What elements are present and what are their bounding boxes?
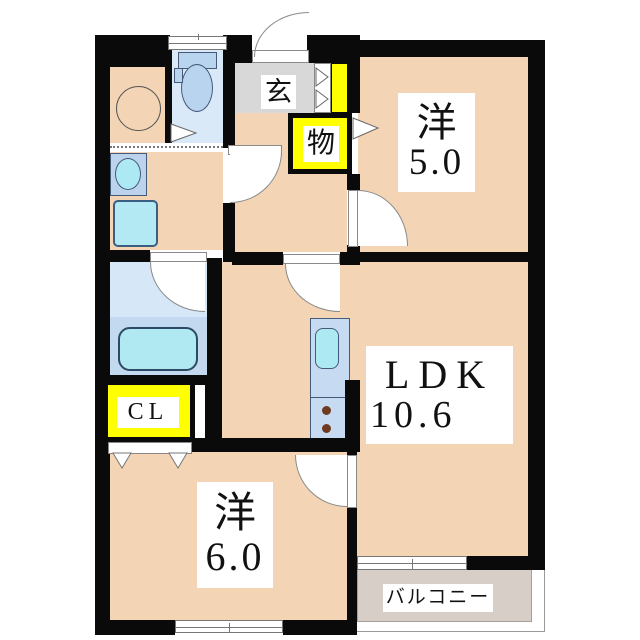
room-name: 洋 xyxy=(417,102,457,144)
room-label-entrance: 玄 xyxy=(261,75,296,109)
wall xyxy=(95,620,175,635)
wall xyxy=(95,35,110,635)
room-label-western5: 洋 5.0 xyxy=(398,93,475,192)
wall xyxy=(108,250,150,262)
shoe-cabinet-folding-door xyxy=(314,63,331,113)
curtain-divider xyxy=(110,143,223,152)
folding-door-chevron-icon xyxy=(316,68,328,86)
wall xyxy=(283,620,357,635)
washbasin-icon xyxy=(110,153,147,196)
room-area: 10.6 xyxy=(366,396,457,436)
folding-door-chevron-icon xyxy=(316,90,328,108)
entry-door-arc xyxy=(254,12,309,57)
wall xyxy=(528,40,545,570)
washbasin-bowl-icon xyxy=(115,158,141,190)
room-label-balcony: バルコニー xyxy=(383,584,493,612)
stove-burner-icon xyxy=(322,406,331,415)
room-label-storage: 物 xyxy=(303,126,339,162)
wall xyxy=(223,38,235,148)
wall xyxy=(347,507,357,635)
room-label-closet: CL xyxy=(117,397,179,428)
room-label-western6: 洋 6.0 xyxy=(197,482,273,588)
toilet-icon xyxy=(181,64,213,112)
western6-door-leaf xyxy=(347,455,357,508)
washing-machine-pan-icon xyxy=(113,200,158,247)
wall xyxy=(232,252,283,265)
shoe-cabinet xyxy=(331,63,348,113)
wall xyxy=(467,556,533,570)
wall xyxy=(207,258,222,380)
folding-door-triangle-icon xyxy=(112,452,132,470)
folding-door-triangle-icon xyxy=(168,452,188,470)
room-name: 洋 xyxy=(214,492,256,536)
bathroom-door-leaf xyxy=(150,252,207,262)
kitchen-sink-icon xyxy=(315,328,339,369)
window xyxy=(168,36,227,50)
balcony-sliding-door xyxy=(357,556,467,570)
room-area: 6.0 xyxy=(206,536,265,578)
wall xyxy=(347,57,360,113)
stove-unit-icon xyxy=(310,397,350,440)
wall xyxy=(347,40,545,57)
wall xyxy=(353,252,533,262)
room-name: 玄 xyxy=(265,78,292,106)
room-name: バルコニー xyxy=(386,588,491,608)
toilet-door-icon xyxy=(170,122,198,144)
storage-door-icon xyxy=(352,116,380,141)
room-name: LDK xyxy=(385,354,494,396)
toilet-flush-icon xyxy=(174,68,183,83)
room-name: CL xyxy=(128,400,169,425)
stove-burner-icon xyxy=(322,424,331,433)
room-name: 物 xyxy=(307,129,335,158)
bathtub-icon xyxy=(118,327,198,371)
window xyxy=(175,620,283,633)
round-fixture-icon xyxy=(116,86,161,131)
wall xyxy=(192,438,360,452)
wall xyxy=(347,174,360,190)
ldk-door-leaf xyxy=(283,254,340,264)
room-label-ldk: LDK 10.6 xyxy=(366,346,513,444)
kitchen-counter-icon xyxy=(310,318,350,398)
room-area: 5.0 xyxy=(409,144,464,183)
western5-door-leaf xyxy=(348,190,358,247)
floor-plan: 洋 5.0 LDK 10.6 洋 6.0 玄 物 CL バルコニー xyxy=(0,0,640,640)
